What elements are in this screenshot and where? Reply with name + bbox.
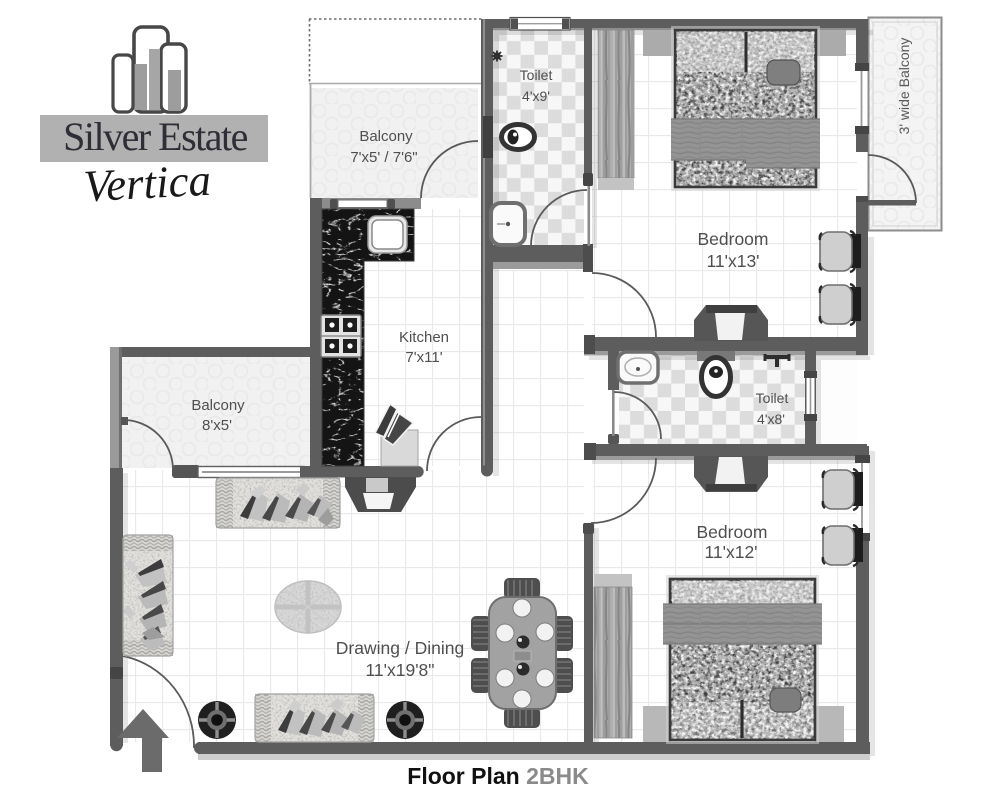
svg-text:Silver Estate: Silver Estate bbox=[63, 114, 248, 159]
svg-text:Kitchen: Kitchen bbox=[399, 329, 449, 346]
svg-text:Bedroom: Bedroom bbox=[696, 522, 767, 542]
svg-text:Toilet: Toilet bbox=[756, 390, 789, 406]
svg-text:11'x19'8": 11'x19'8" bbox=[365, 660, 434, 680]
svg-text:4'x9': 4'x9' bbox=[522, 88, 550, 104]
svg-text:Drawing / Dining: Drawing / Dining bbox=[336, 638, 464, 658]
svg-text:8'x5': 8'x5' bbox=[202, 417, 232, 434]
svg-text:Toilet: Toilet bbox=[520, 67, 553, 83]
svg-text:11'x12': 11'x12' bbox=[704, 542, 757, 562]
svg-text:Vertica: Vertica bbox=[82, 155, 212, 212]
svg-text:Bedroom: Bedroom bbox=[697, 229, 768, 249]
svg-text:Balcony: Balcony bbox=[359, 128, 413, 145]
svg-text:7'x11': 7'x11' bbox=[405, 349, 442, 366]
svg-text:3' wide Balcony: 3' wide Balcony bbox=[896, 38, 912, 135]
svg-text:Balcony: Balcony bbox=[191, 397, 245, 414]
svg-text:4'x8': 4'x8' bbox=[757, 411, 785, 427]
svg-text:11'x13': 11'x13' bbox=[706, 251, 759, 271]
svg-text:7'x5' / 7'6": 7'x5' / 7'6" bbox=[350, 149, 417, 166]
svg-text:Floor Plan 2BHK: Floor Plan 2BHK bbox=[407, 763, 589, 789]
